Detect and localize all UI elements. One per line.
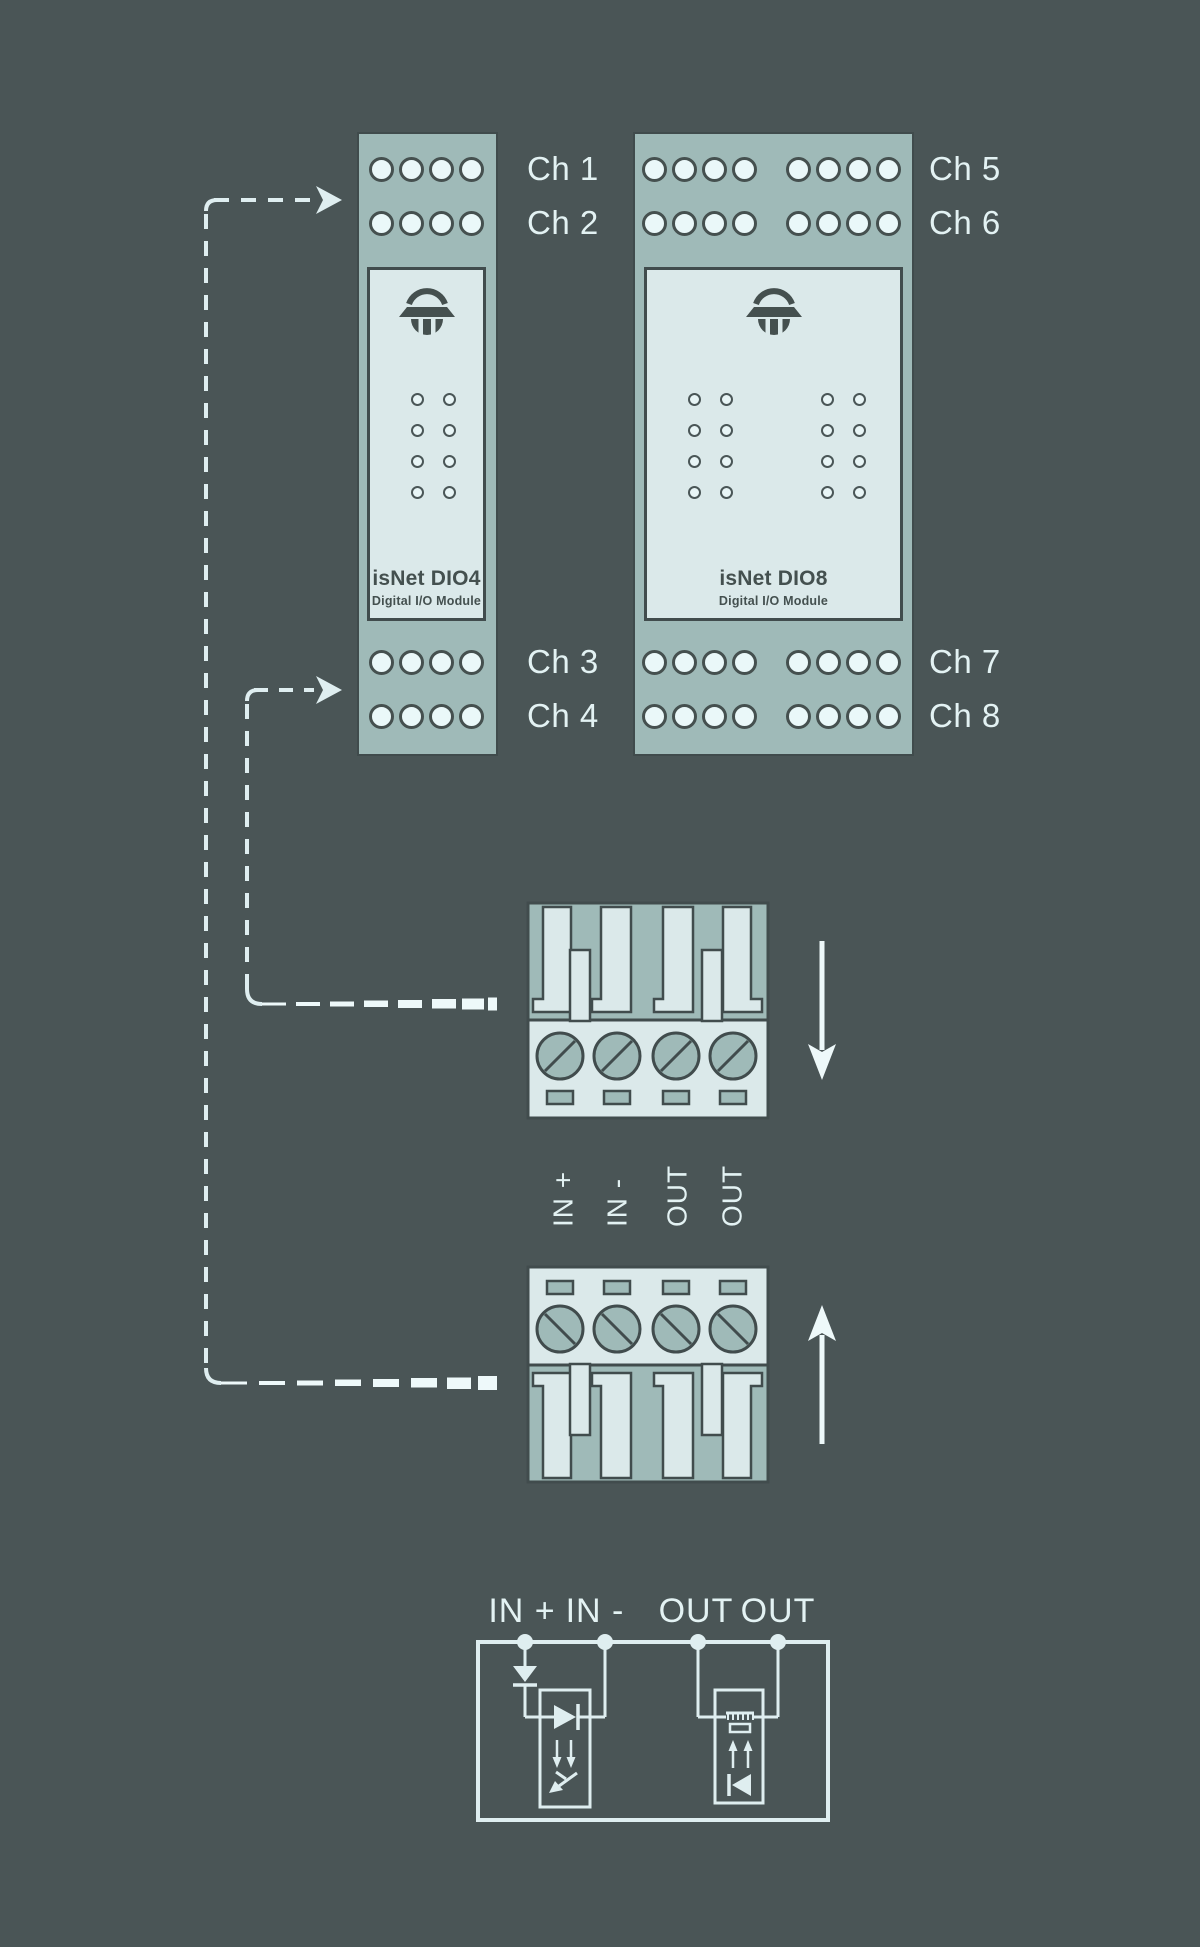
terminal-hole: [732, 650, 757, 675]
led-indicator: [853, 424, 866, 437]
led-indicator: [821, 486, 834, 499]
terminal-row-ch5: [642, 157, 901, 182]
dashed-route-ch3-ch4: [247, 690, 314, 1004]
route-arrowhead-ch1-ch2: [316, 186, 342, 214]
led-indicator: [720, 455, 733, 468]
channel-label-ch3: Ch 3: [527, 643, 599, 681]
channel-label-ch5: Ch 5: [929, 150, 1001, 188]
terminal-row-ch1: [369, 157, 484, 182]
terminal-hole: [672, 704, 697, 729]
led-indicator: [443, 424, 456, 437]
terminal-hole: [876, 157, 901, 182]
circuit-terminal-dots: [517, 1634, 786, 1650]
led-indicator: [411, 455, 424, 468]
terminal-hole: [816, 157, 841, 182]
led-indicator: [853, 486, 866, 499]
isnet-logo-icon: [746, 288, 802, 338]
terminal-hole: [732, 157, 757, 182]
lineart-overlay: IN + IN - OUT OUT IN + IN - OUT OUT: [0, 0, 1200, 1947]
module-subtitle: Digital I/O Module: [370, 594, 483, 608]
terminal-hole: [429, 157, 454, 182]
light-reception-arrows-up: [729, 1740, 753, 1768]
terminal-hole: [642, 157, 667, 182]
terminal-row-ch6: [642, 211, 901, 236]
diagram-canvas: isNet DIO4 Digital I/O Module: [0, 0, 1200, 1947]
led-indicator: [443, 455, 456, 468]
terminal-hole: [786, 211, 811, 236]
led-indicator: [853, 455, 866, 468]
channel-label-ch7: Ch 7: [929, 643, 1001, 681]
circuit-boundary-box: [478, 1642, 828, 1820]
module-dio4: isNet DIO4 Digital I/O Module: [359, 134, 496, 754]
tapered-dashes-to-top-connector: [262, 998, 497, 1011]
led-indicator: [443, 486, 456, 499]
terminal-hole: [429, 650, 454, 675]
terminal-hole: [816, 650, 841, 675]
module-dio8: isNet DIO8 Digital I/O Module: [635, 134, 912, 754]
led-indicator: [411, 393, 424, 406]
module-face-dio8: isNet DIO8 Digital I/O Module: [644, 267, 903, 621]
terminal-hole: [642, 650, 667, 675]
terminal-hole: [642, 704, 667, 729]
phototransistor-icon: [549, 1772, 577, 1793]
module-name: isNet DIO4: [370, 567, 483, 591]
module-subtitle: Digital I/O Module: [647, 594, 900, 608]
optocoupler-box: [540, 1690, 590, 1807]
led-grid: [411, 393, 456, 499]
terminal-hole: [429, 704, 454, 729]
plug-connector-top: [528, 903, 836, 1118]
terminal-hole: [732, 704, 757, 729]
channel-label-ch4: Ch 4: [527, 697, 599, 735]
led-indicator: [688, 424, 701, 437]
terminal-hole: [816, 211, 841, 236]
terminal-row-ch7: [642, 650, 901, 675]
pin-label-out-1: OUT: [662, 1165, 693, 1227]
terminal-hole: [786, 650, 811, 675]
led-indicator: [720, 424, 733, 437]
led-indicator: [688, 486, 701, 499]
protection-diode-icon: [513, 1666, 537, 1682]
terminal-hole: [399, 157, 424, 182]
tapered-dashes-to-bottom-connector: [221, 1376, 497, 1390]
circuit-label-in-plus: IN +: [488, 1592, 555, 1630]
terminal-hole: [702, 650, 727, 675]
terminal-hole: [846, 650, 871, 675]
terminal-hole: [459, 211, 484, 236]
isnet-logo-icon: [399, 288, 455, 338]
terminal-hole: [459, 650, 484, 675]
led-indicator: [720, 486, 733, 499]
opto-led-icon: [554, 1705, 576, 1729]
output-stage-box: [715, 1690, 763, 1803]
led-indicator: [411, 486, 424, 499]
terminal-hole: [642, 211, 667, 236]
led-indicator: [411, 424, 424, 437]
circuit-label-out-1: OUT: [659, 1592, 734, 1630]
pin-label-in-minus: IN -: [602, 1178, 633, 1227]
terminal-hole: [459, 704, 484, 729]
light-emission-arrows-down: [553, 1740, 576, 1768]
plug-connector-bottom: [528, 1267, 836, 1482]
terminal-hole: [702, 157, 727, 182]
terminal-hole: [786, 157, 811, 182]
terminal-hole: [672, 157, 697, 182]
terminal-hole: [672, 211, 697, 236]
input-branch: [513, 1642, 605, 1807]
terminal-row-ch3: [369, 650, 484, 675]
led-indicator: [688, 455, 701, 468]
dashed-route-ch1-ch2: [206, 200, 316, 1383]
terminal-hole: [399, 211, 424, 236]
terminal-hole: [369, 157, 394, 182]
channel-label-ch6: Ch 6: [929, 204, 1001, 242]
mosfet-output-icon: [726, 1713, 754, 1732]
channel-label-ch1: Ch 1: [527, 150, 599, 188]
terminal-hole: [369, 211, 394, 236]
terminal-hole: [846, 704, 871, 729]
led-indicator: [853, 393, 866, 406]
terminal-hole: [876, 211, 901, 236]
terminal-hole: [369, 704, 394, 729]
output-led-icon: [732, 1774, 751, 1796]
pin-label-out-2: OUT: [717, 1165, 748, 1227]
route-arrowhead-ch3-ch4: [316, 676, 342, 704]
terminal-hole: [702, 704, 727, 729]
led-indicator: [688, 393, 701, 406]
led-indicator: [821, 455, 834, 468]
terminal-hole: [876, 650, 901, 675]
channel-label-ch8: Ch 8: [929, 697, 1001, 735]
led-indicator: [720, 393, 733, 406]
module-name: isNet DIO8: [647, 567, 900, 591]
terminal-hole: [369, 650, 394, 675]
terminal-hole: [672, 650, 697, 675]
led-grid: [821, 393, 866, 499]
circuit-label-out-2: OUT: [741, 1592, 816, 1630]
terminal-hole: [399, 650, 424, 675]
terminal-hole: [399, 704, 424, 729]
circuit-label-in-minus: IN -: [566, 1592, 625, 1630]
module-title-dio8: isNet DIO8 Digital I/O Module: [647, 567, 900, 608]
module-title-dio4: isNet DIO4 Digital I/O Module: [370, 567, 483, 608]
terminal-hole: [816, 704, 841, 729]
terminal-hole: [786, 704, 811, 729]
led-indicator: [821, 424, 834, 437]
led-indicator: [443, 393, 456, 406]
pin-label-in-plus: IN +: [548, 1171, 579, 1227]
output-branch: [698, 1642, 778, 1803]
channel-label-ch2: Ch 2: [527, 204, 599, 242]
terminal-row-ch4: [369, 704, 484, 729]
terminal-hole: [732, 211, 757, 236]
terminal-hole: [846, 211, 871, 236]
terminal-hole: [429, 211, 454, 236]
led-indicator: [821, 393, 834, 406]
terminal-hole: [702, 211, 727, 236]
terminal-row-ch8: [642, 704, 901, 729]
terminal-hole: [459, 157, 484, 182]
terminal-hole: [876, 704, 901, 729]
terminal-hole: [846, 157, 871, 182]
terminal-row-ch2: [369, 211, 484, 236]
led-grid: [688, 393, 733, 499]
module-face-dio4: isNet DIO4 Digital I/O Module: [367, 267, 486, 621]
io-circuit-schematic: IN + IN - OUT OUT: [478, 1592, 828, 1820]
